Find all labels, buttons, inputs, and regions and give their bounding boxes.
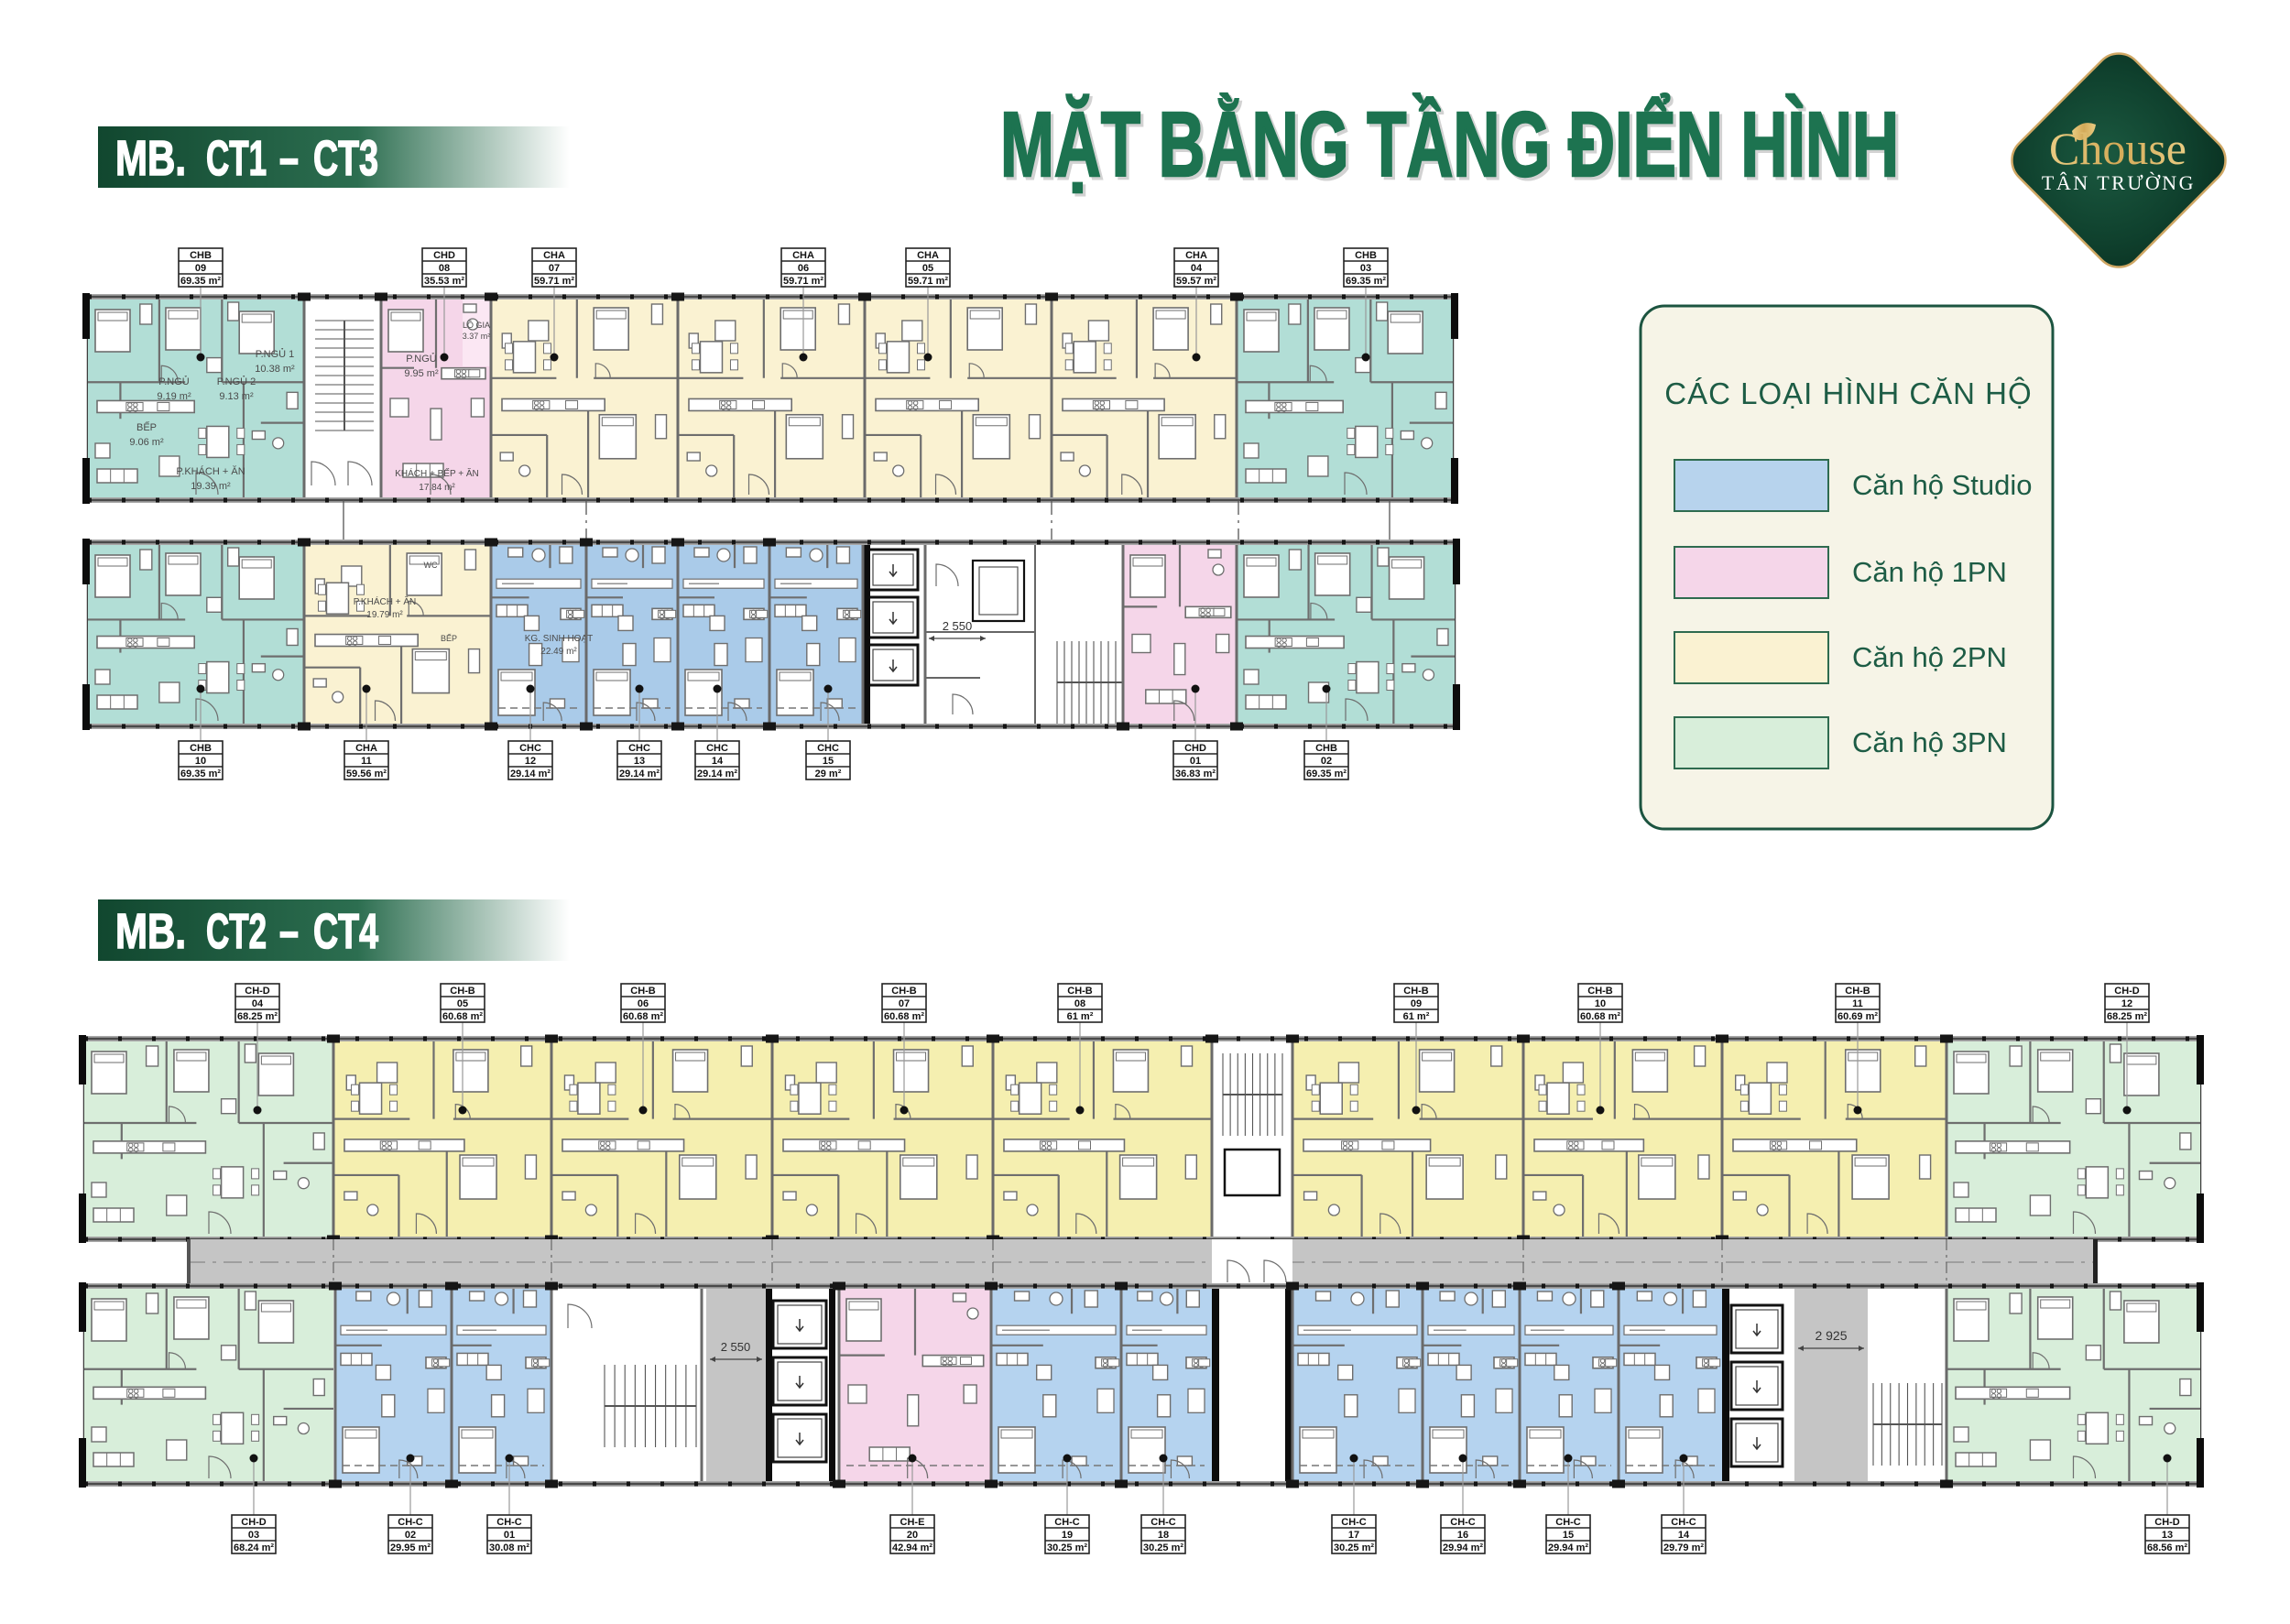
svg-text:CH-D: CH-D [241,1517,267,1528]
svg-text:01: 01 [504,1530,515,1541]
svg-text:06: 06 [638,998,649,1009]
svg-text:22.49 m²: 22.49 m² [540,647,577,657]
svg-text:59.71 m²: 59.71 m² [908,276,948,287]
svg-text:CHD: CHD [1184,743,1206,754]
svg-text:MB.: MB. [115,131,186,186]
svg-text:01: 01 [1190,756,1201,767]
svg-text:29.79 m²: 29.79 m² [1663,1542,1704,1553]
svg-text:12: 12 [2121,998,2132,1009]
svg-text:13: 13 [2162,1530,2173,1541]
svg-text:60.69 m²: 60.69 m² [1837,1011,1878,1022]
svg-text:29.94 m²: 29.94 m² [1548,1542,1588,1553]
svg-text:CH-C: CH-C [1671,1517,1696,1528]
svg-text:59.71 m²: 59.71 m² [534,276,574,287]
svg-text:30.25 m²: 30.25 m² [1047,1542,1087,1553]
svg-text:Căn hộ 1PN: Căn hộ 1PN [1852,556,2007,588]
svg-text:CÁC LOẠI HÌNH CĂN HỘ: CÁC LOẠI HÌNH CĂN HỘ [1664,376,2032,410]
svg-text:05: 05 [922,263,933,274]
svg-text:CH-C: CH-C [1341,1517,1367,1528]
svg-text:CH-C: CH-C [398,1517,423,1528]
svg-text:10: 10 [195,756,206,767]
svg-text:CHB: CHB [1315,743,1337,754]
svg-text:69.35 m²: 69.35 m² [180,276,221,287]
svg-text:Căn hộ 2PN: Căn hộ 2PN [1852,641,2007,673]
svg-text:–: – [279,131,299,186]
svg-text:CH-E: CH-E [900,1517,925,1528]
svg-text:CH-B: CH-B [450,986,475,997]
svg-text:17: 17 [1348,1530,1359,1541]
svg-text:08: 08 [439,263,450,274]
svg-text:CH-C: CH-C [1054,1517,1080,1528]
svg-text:19: 19 [1062,1530,1073,1541]
svg-text:BẾP: BẾP [441,634,457,643]
svg-text:CT1: CT1 [206,131,267,186]
svg-text:9.95 m²: 9.95 m² [404,368,439,379]
svg-text:CH-C: CH-C [1150,1517,1176,1528]
svg-text:CT4: CT4 [313,904,378,959]
svg-text:2 925: 2 925 [1815,1328,1847,1343]
svg-text:07: 07 [549,263,560,274]
svg-text:P.NGỦ 2: P.NGỦ 2 [217,376,256,387]
svg-text:CH-B: CH-B [1845,986,1870,997]
svg-text:02: 02 [1321,756,1332,767]
svg-text:68.25 m²: 68.25 m² [237,1011,278,1022]
svg-text:CH-B: CH-B [1067,986,1093,997]
svg-text:CH-D: CH-D [245,986,270,997]
svg-text:69.35 m²: 69.35 m² [1346,276,1386,287]
svg-text:CHA: CHA [543,250,565,261]
svg-text:P.NGỦ 1: P.NGỦ 1 [256,348,295,360]
svg-text:13: 13 [634,756,645,767]
svg-text:MB.: MB. [115,904,186,959]
svg-text:9.13 m²: 9.13 m² [219,391,254,402]
svg-text:P.NGỦ: P.NGỦ [158,376,189,387]
svg-text:P.NGỦ: P.NGỦ [406,353,436,365]
svg-text:CHB: CHB [190,250,212,261]
svg-text:68.24 m²: 68.24 m² [234,1542,274,1553]
svg-text:14: 14 [1678,1530,1690,1541]
svg-text:CT3: CT3 [313,131,378,186]
svg-text:CHC: CHC [519,743,541,754]
svg-text:CHC: CHC [817,743,839,754]
svg-text:P.KHÁCH + ĂN: P.KHÁCH + ĂN [176,465,245,477]
svg-text:CHB: CHB [1355,250,1377,261]
svg-text:CH-B: CH-B [1587,986,1613,997]
svg-text:Căn hộ 3PN: Căn hộ 3PN [1852,726,2007,758]
svg-text:35.53 m²: 35.53 m² [424,276,464,287]
svg-text:03: 03 [248,1530,259,1541]
svg-text:CH-B: CH-B [630,986,656,997]
svg-text:Chouse: Chouse [2049,123,2186,174]
svg-text:15: 15 [1563,1530,1574,1541]
svg-text:–: – [279,904,299,959]
svg-text:MẶT BẰNG TẦNG ĐIỂN HÌNH: MẶT BẰNG TẦNG ĐIỂN HÌNH [1000,93,1899,196]
svg-text:29.14 m²: 29.14 m² [510,768,551,779]
svg-text:14: 14 [712,756,724,767]
svg-text:CHA: CHA [917,250,939,261]
svg-text:69.35 m²: 69.35 m² [1306,768,1347,779]
svg-text:19.79 m²: 19.79 m² [366,610,403,620]
svg-text:30.08 m²: 30.08 m² [489,1542,529,1553]
svg-text:61 m²: 61 m² [1403,1011,1430,1022]
svg-text:09: 09 [1411,998,1422,1009]
svg-text:KG. SINH HOẠT: KG. SINH HOẠT [525,634,593,644]
svg-text:2 550: 2 550 [943,619,973,633]
svg-text:04: 04 [252,998,264,1009]
svg-text:CH-B: CH-B [891,986,917,997]
svg-text:CHB: CHB [190,743,212,754]
svg-text:CH-C: CH-C [1555,1517,1581,1528]
svg-text:CT2: CT2 [206,904,267,959]
svg-text:3.37 m²: 3.37 m² [463,332,491,341]
svg-text:17.84 m²: 17.84 m² [419,483,455,493]
svg-text:06: 06 [798,263,809,274]
svg-text:29.14 m²: 29.14 m² [697,768,737,779]
svg-text:04: 04 [1191,263,1203,274]
svg-text:CH-C: CH-C [496,1517,522,1528]
svg-text:9.06 m²: 9.06 m² [129,437,164,448]
svg-text:69.35 m²: 69.35 m² [180,768,221,779]
svg-text:59.56 m²: 59.56 m² [346,768,387,779]
svg-text:KHÁCH + BẾP + ĂN: KHÁCH + BẾP + ĂN [395,467,479,479]
svg-text:12: 12 [525,756,536,767]
svg-text:15: 15 [823,756,834,767]
svg-text:9.19 m²: 9.19 m² [157,391,191,402]
svg-text:08: 08 [1074,998,1085,1009]
svg-text:TÂN TRƯỜNG: TÂN TRƯỜNG [2042,171,2196,194]
svg-text:11: 11 [1852,998,1863,1009]
svg-text:36.83 m²: 36.83 m² [1175,768,1216,779]
svg-text:02: 02 [405,1530,416,1541]
svg-text:59.71 m²: 59.71 m² [783,276,823,287]
svg-text:BẾP: BẾP [136,421,157,433]
svg-text:68.56 m²: 68.56 m² [2147,1542,2187,1553]
svg-text:CHA: CHA [355,743,377,754]
svg-text:CH-D: CH-D [2154,1517,2180,1528]
svg-text:CHA: CHA [1185,250,1207,261]
svg-text:60.68 m²: 60.68 m² [884,1011,924,1022]
svg-text:03: 03 [1360,263,1371,274]
svg-text:16: 16 [1457,1530,1468,1541]
svg-text:18: 18 [1158,1530,1169,1541]
svg-text:11: 11 [361,756,372,767]
svg-text:60.68 m²: 60.68 m² [623,1011,663,1022]
svg-text:10.38 m²: 10.38 m² [255,364,295,375]
svg-text:60.68 m²: 60.68 m² [1580,1011,1620,1022]
svg-text:CH-B: CH-B [1403,986,1429,997]
svg-text:29.95 m²: 29.95 m² [390,1542,431,1553]
svg-text:59.57 m²: 59.57 m² [1176,276,1216,287]
svg-text:10: 10 [1595,998,1606,1009]
svg-text:CHC: CHC [706,743,728,754]
svg-text:CH-C: CH-C [1450,1517,1476,1528]
svg-text:CH-D: CH-D [2114,986,2140,997]
svg-text:WC: WC [424,561,438,570]
svg-text:2 550: 2 550 [721,1340,751,1354]
svg-text:19.39 m²: 19.39 m² [191,481,231,492]
svg-text:30.25 m²: 30.25 m² [1143,1542,1183,1553]
svg-text:CHC: CHC [628,743,650,754]
svg-text:05: 05 [457,998,468,1009]
svg-text:29 m²: 29 m² [815,768,842,779]
svg-text:42.94 m²: 42.94 m² [892,1542,932,1553]
svg-text:CHA: CHA [792,250,814,261]
svg-text:Căn hộ Studio: Căn hộ Studio [1852,469,2032,501]
svg-text:30.25 m²: 30.25 m² [1334,1542,1374,1553]
svg-text:60.68 m²: 60.68 m² [442,1011,483,1022]
svg-text:61 m²: 61 m² [1067,1011,1094,1022]
svg-text:CHD: CHD [433,250,455,261]
svg-text:09: 09 [195,263,206,274]
svg-text:07: 07 [899,998,910,1009]
svg-text:P.KHÁCH + ĂN: P.KHÁCH + ĂN [354,595,416,607]
svg-text:29.94 m²: 29.94 m² [1443,1542,1483,1553]
svg-text:20: 20 [907,1530,918,1541]
svg-text:LÔ GIA: LÔ GIA [463,321,490,330]
svg-text:29.14 m²: 29.14 m² [619,768,660,779]
svg-text:68.25 m²: 68.25 m² [2107,1011,2147,1022]
